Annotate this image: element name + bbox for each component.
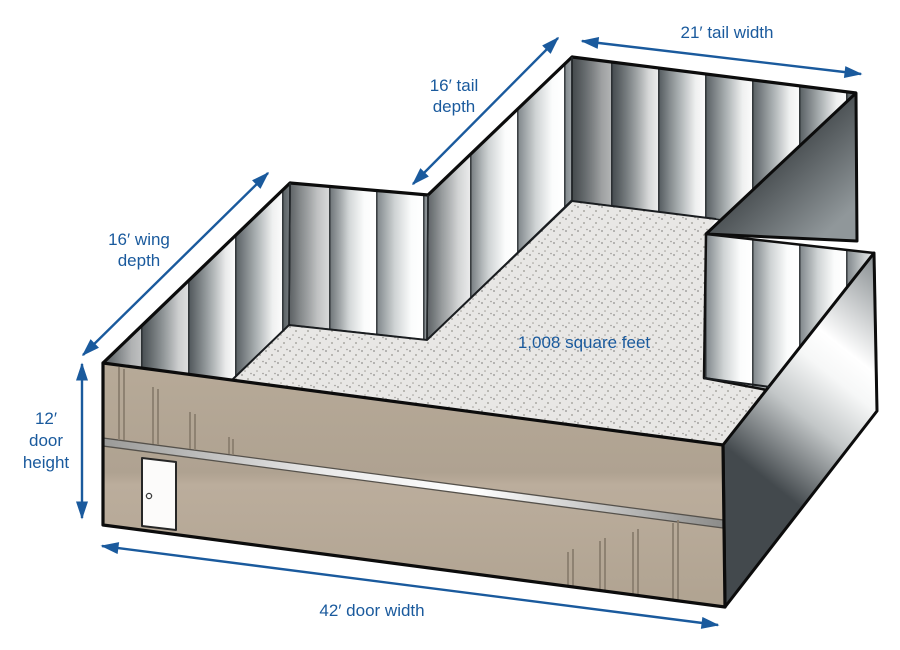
tail-width-label: 21′ tail width [627, 22, 827, 43]
tail-depth-label: 16′ tail depth [394, 75, 514, 117]
door-knob [146, 493, 151, 498]
wing-depth-label: 16′ wing depth [79, 229, 199, 271]
door-height-label: 12′ door height [6, 408, 86, 474]
left-wing-back-wall [289, 183, 428, 340]
hangar-dimension-diagram: 21′ tail width 16′ tail depth 16′ wing d… [0, 0, 900, 650]
floor-area-label: 1,008 square feet [484, 332, 684, 353]
door-width-label: 42′ door width [292, 600, 452, 621]
